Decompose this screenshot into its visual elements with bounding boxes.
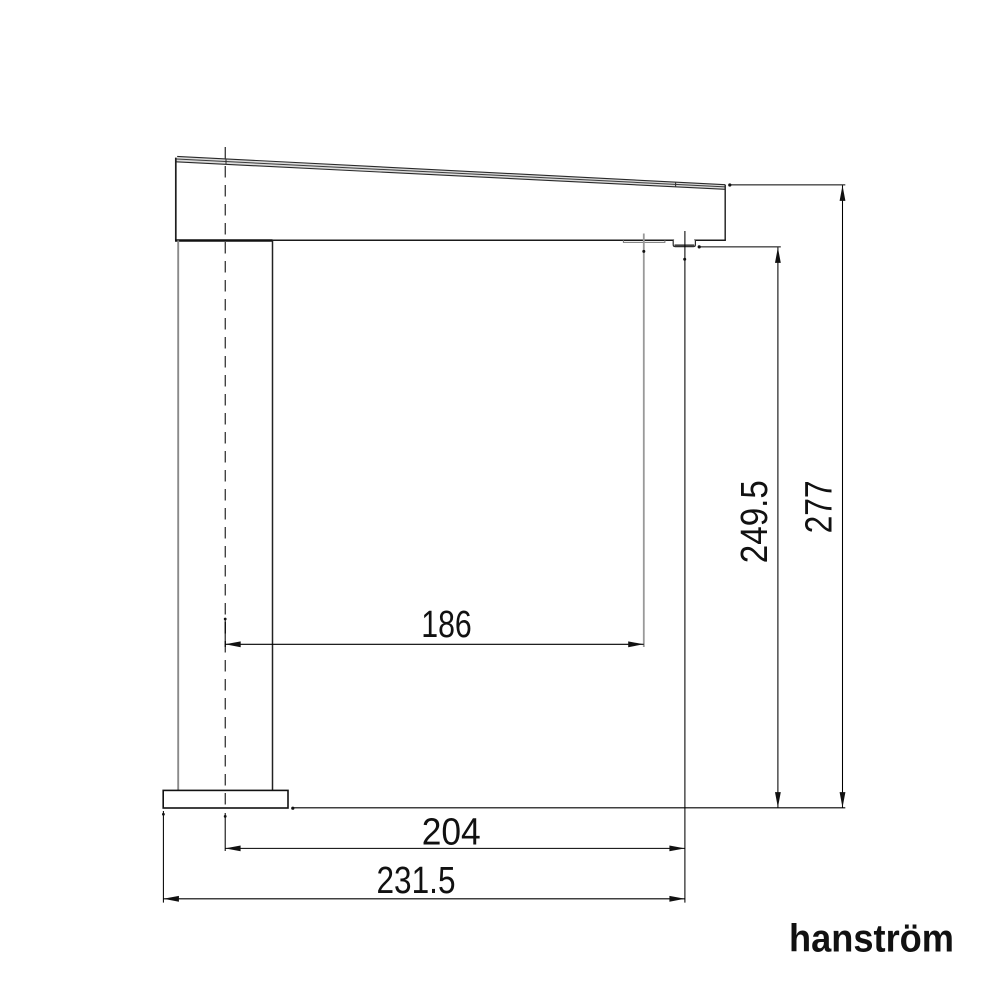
svg-text:hanström: hanström	[789, 918, 954, 961]
svg-text:231.5: 231.5	[377, 860, 456, 902]
svg-text:277: 277	[799, 480, 841, 533]
svg-text:204: 204	[422, 812, 481, 854]
svg-text:249.5: 249.5	[734, 480, 776, 563]
svg-text:186: 186	[421, 604, 472, 646]
